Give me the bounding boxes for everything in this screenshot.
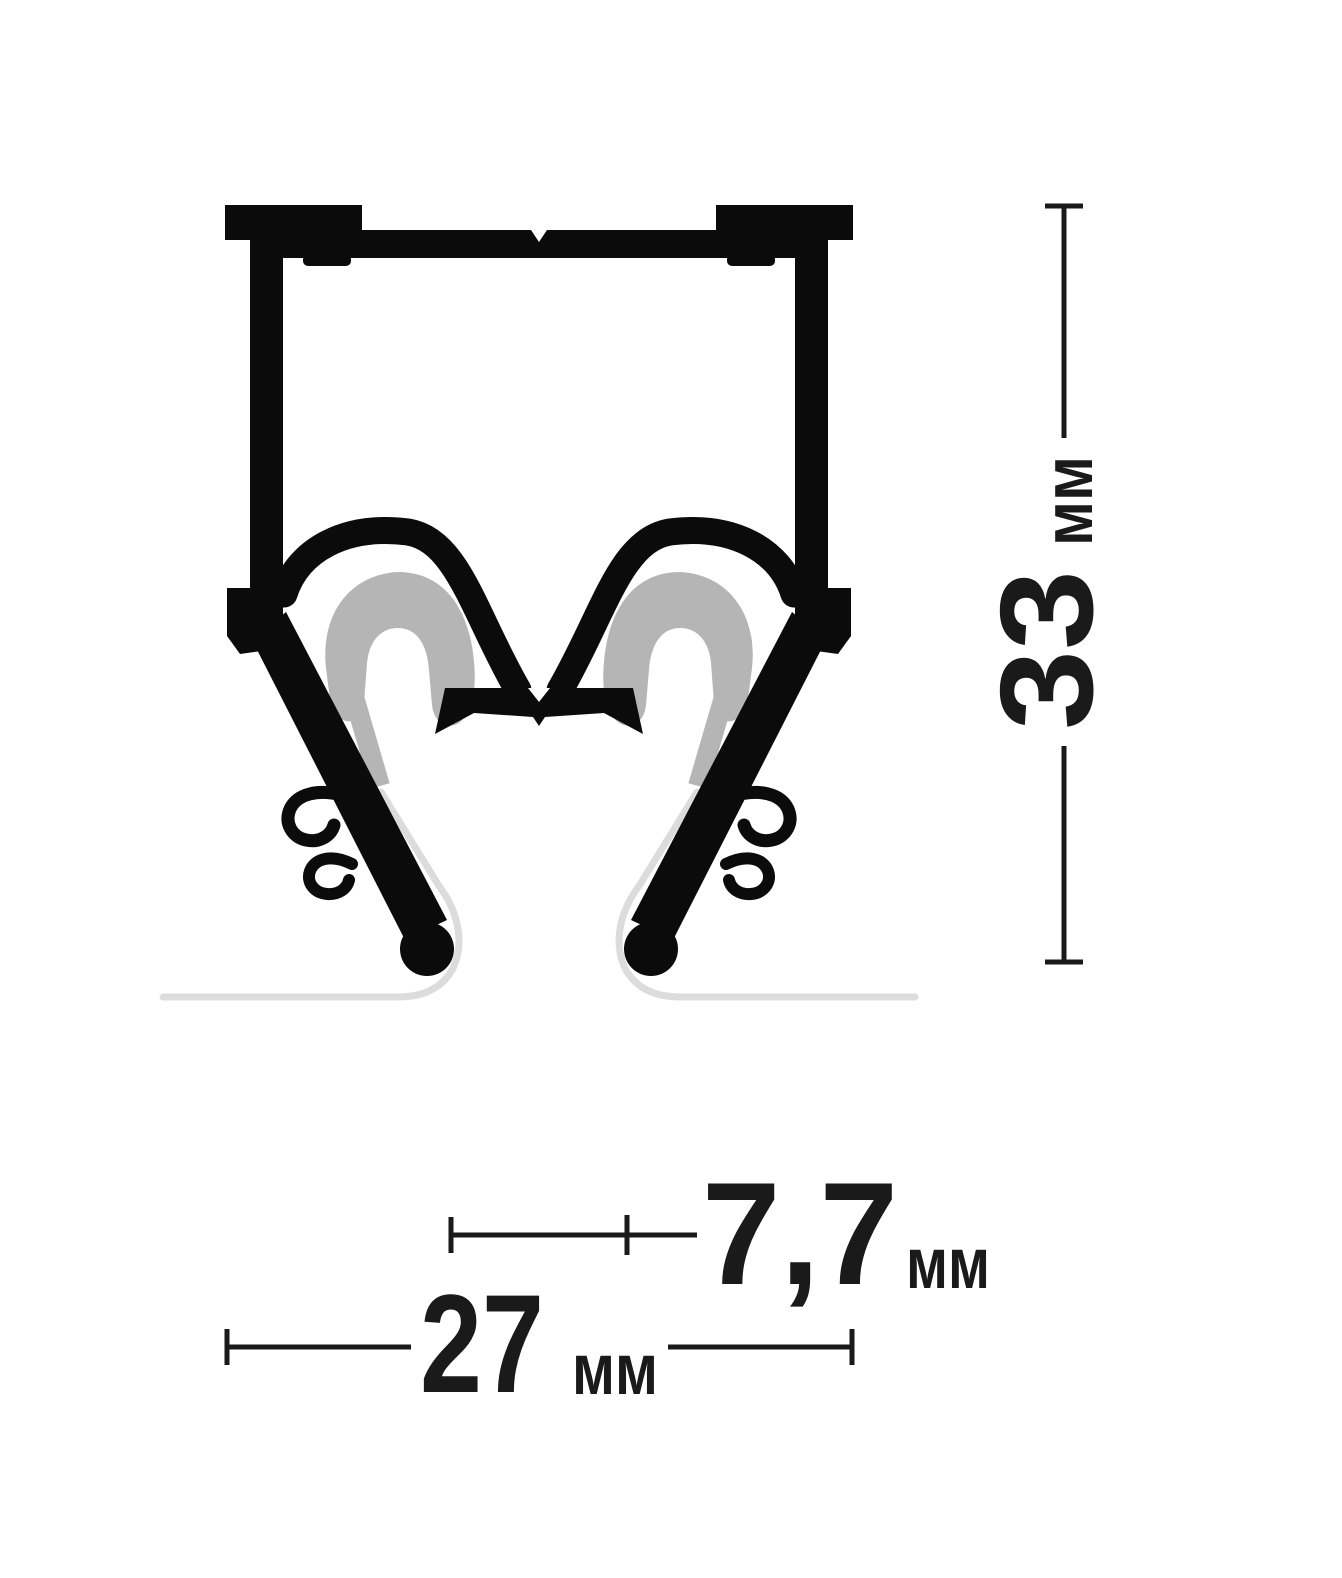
profile-dimension-drawing: 33 мм 7,7 мм 27 мм [0,0,1342,1578]
dim-width-unit: мм [572,1330,658,1410]
dim-gap-value: 7,7 [702,1152,898,1315]
film-membrane-group [163,792,915,997]
profile-body [225,205,853,976]
dim-gap-unit: мм [906,1224,990,1304]
dim-width-value: 27 [420,1265,544,1422]
dim-height-unit: мм [1029,456,1107,546]
dim-height-value: 33 [973,570,1120,730]
dim-height: 33 мм [973,206,1120,962]
insert-clips [325,572,752,786]
drawing-canvas: 33 мм 7,7 мм 27 мм [0,0,1342,1578]
